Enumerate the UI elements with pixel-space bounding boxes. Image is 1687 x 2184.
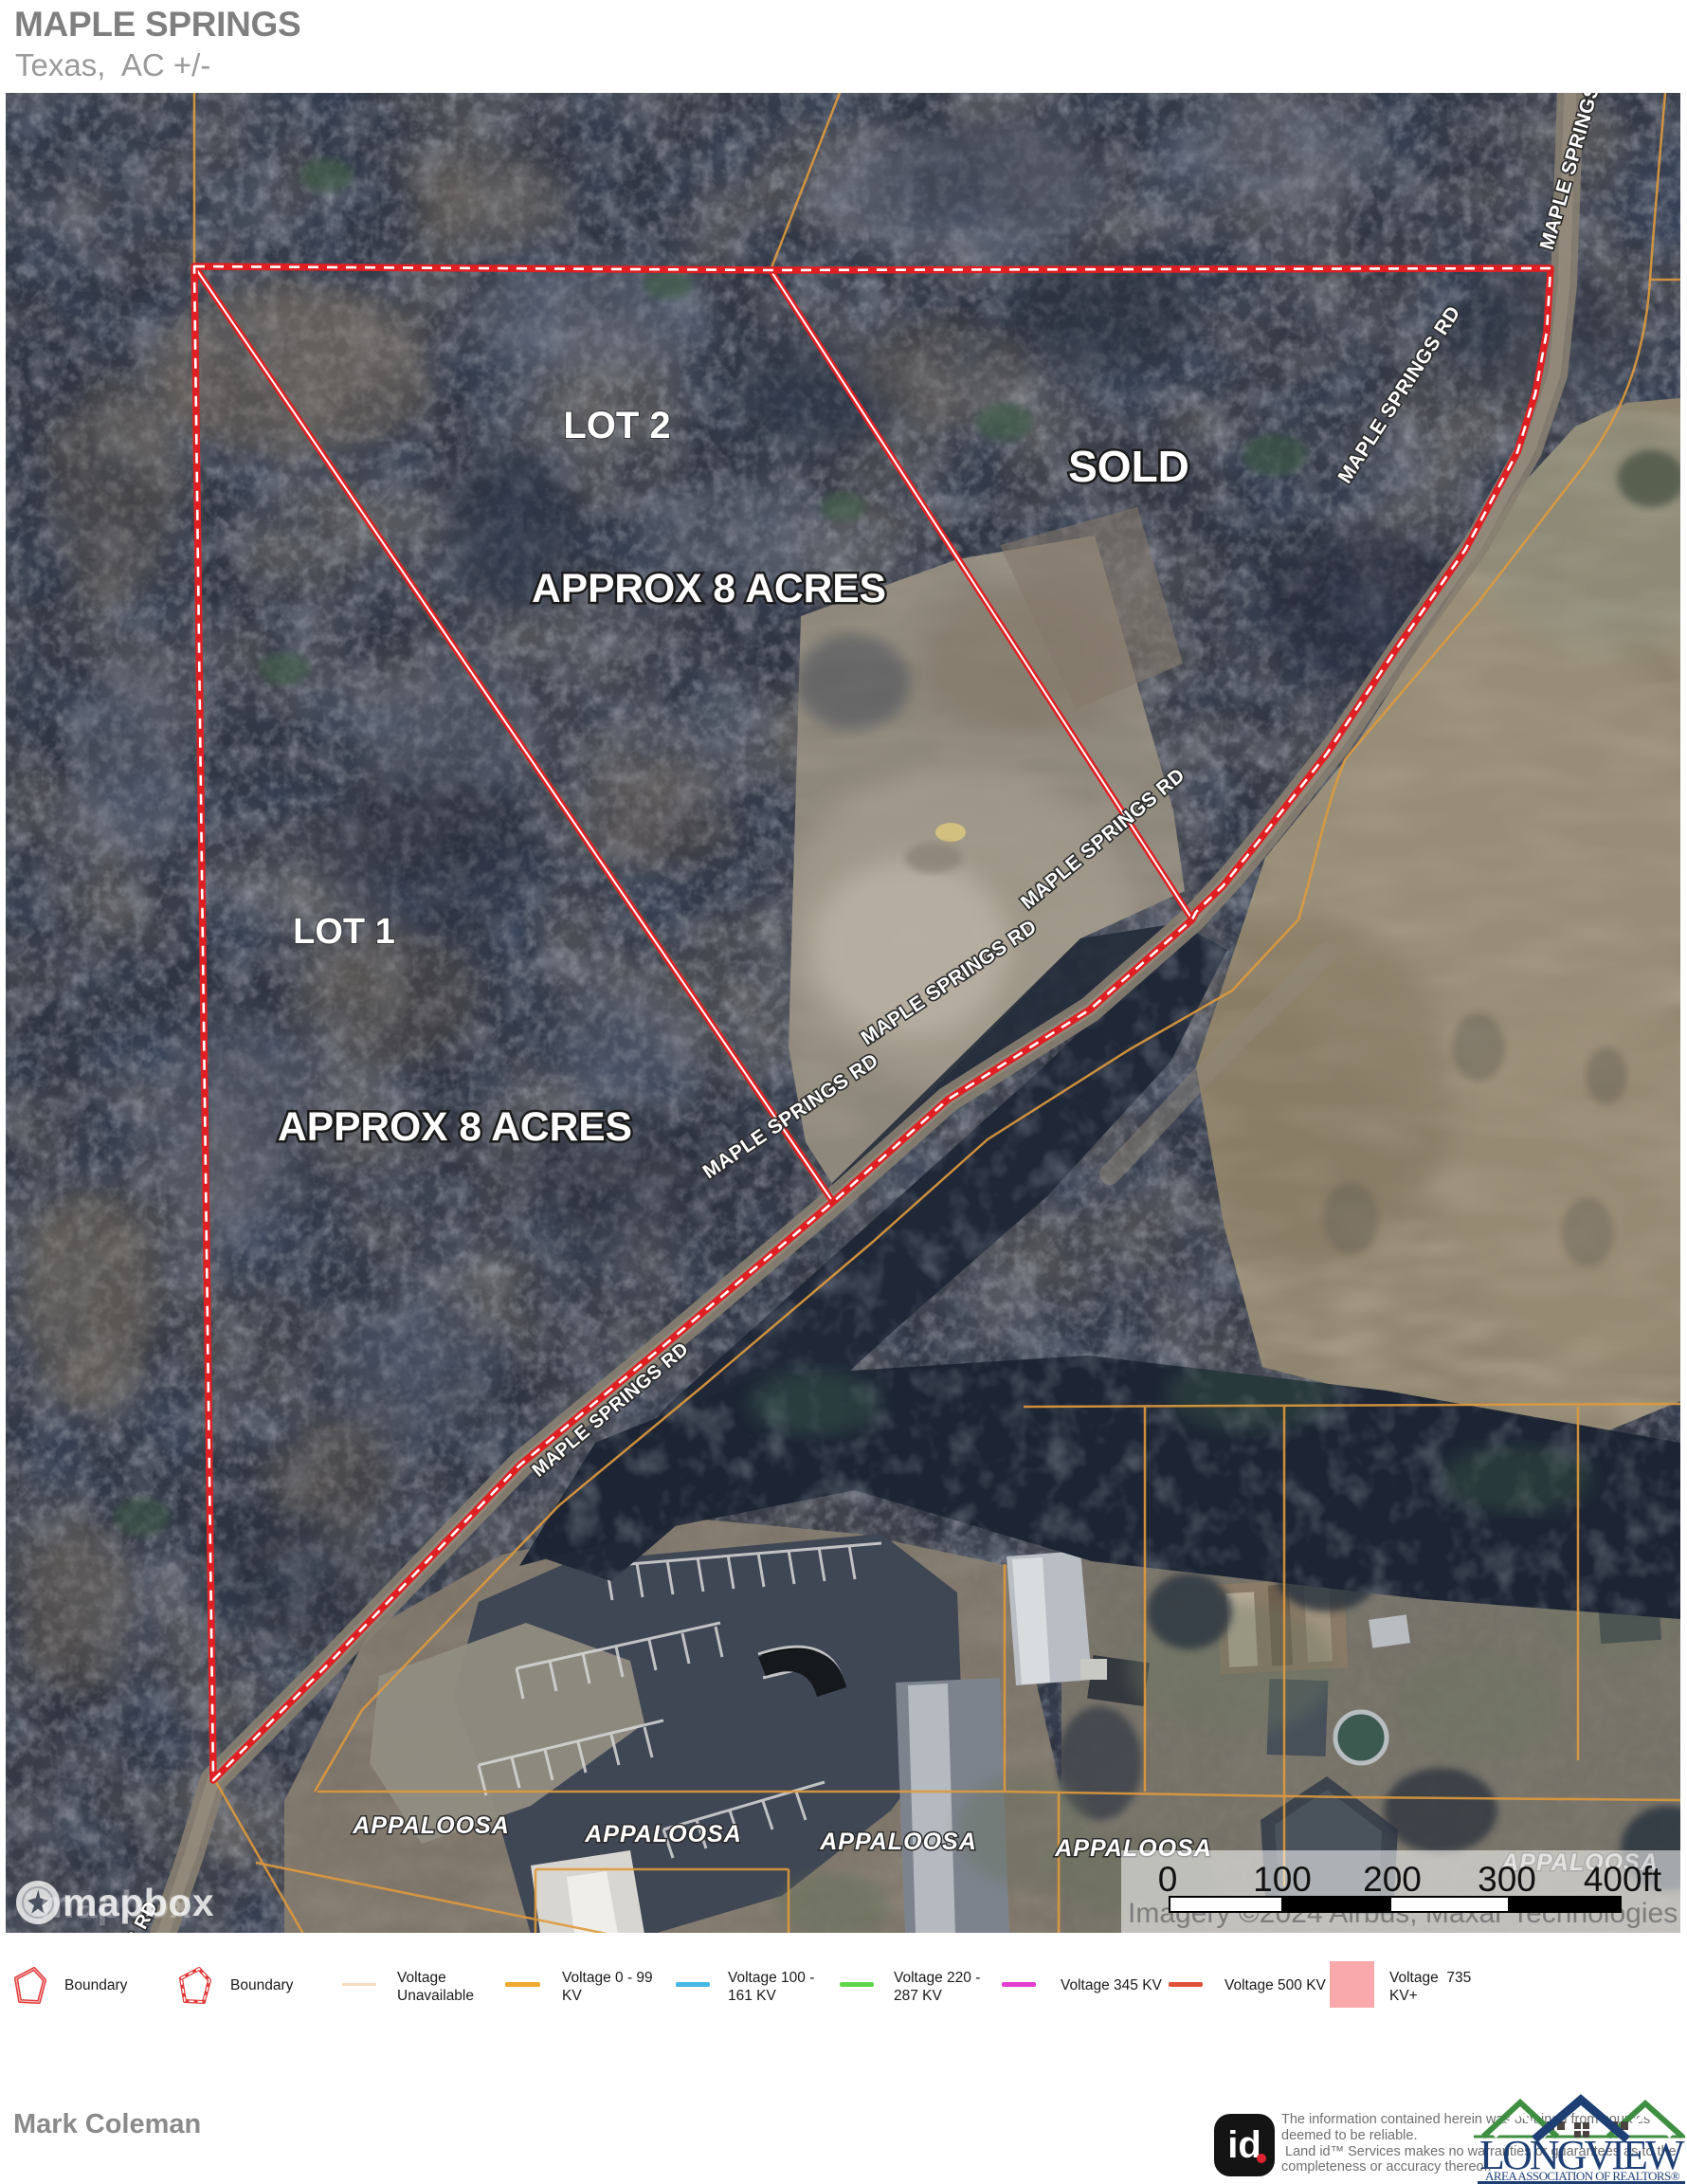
svg-text:mapbox: mapbox <box>40 1883 191 1926</box>
svg-text:APPROX 8 ACRES: APPROX 8 ACRES <box>532 567 886 611</box>
svg-text:SOLD: SOLD <box>1068 442 1189 491</box>
svg-text:APPALOOSA: APPALOOSA <box>819 1829 977 1855</box>
svg-text:APPALOOSA: APPALOOSA <box>352 1812 510 1839</box>
svg-text:AREA ASSOCIATION OF REALTORS®: AREA ASSOCIATION OF REALTORS® <box>1485 2169 1680 2183</box>
svg-text:LOT 2: LOT 2 <box>563 405 670 446</box>
svg-text:LOT 1: LOT 1 <box>293 912 395 952</box>
svg-text:APPALOOSA: APPALOOSA <box>584 1821 742 1847</box>
svg-text:APPROX 8 ACRES: APPROX 8 ACRES <box>278 1105 632 1150</box>
